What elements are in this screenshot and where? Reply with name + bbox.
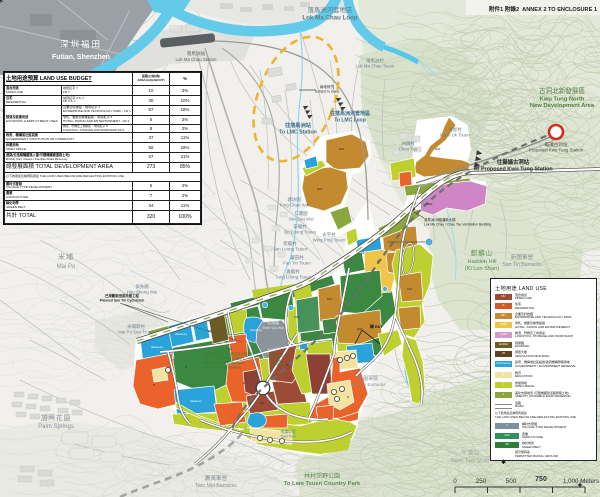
svg-text:1,000 Meters: 1,000 Meters (563, 478, 599, 485)
svg-text:AGR: AGR (294, 315, 300, 319)
svg-text:落馬洲/洲頭通風大樓: 落馬洲/洲頭通風大樓 (424, 217, 456, 222)
svg-text:往擬議古洞站: 往擬議古洞站 (497, 158, 530, 166)
svg-text:鷹萬軍營: 鷹萬軍營 (205, 474, 228, 482)
svg-text:EP: EP (208, 329, 212, 333)
svg-text:落馬洲河套地區: 落馬洲河套地區 (308, 5, 353, 14)
svg-text:0: 0 (453, 478, 457, 485)
svg-text:(Ki Lun Shan): (Ki Lun Shan) (465, 266, 499, 272)
svg-text:Hadden Hill: Hadden Hill (468, 259, 497, 265)
svg-text:To Proposed Kwu Tung Station: To Proposed Kwu Tung Station (473, 167, 552, 173)
svg-text:Town Park: Town Park (280, 435, 296, 439)
svg-text:750: 750 (535, 476, 547, 483)
svg-text:石湖圍: 石湖圍 (267, 319, 279, 325)
svg-text:centre: centre (271, 363, 281, 367)
svg-text:(Reserve): (Reserve) (250, 328, 262, 332)
svg-text:R: R (347, 395, 349, 399)
svg-text:Lok Ma Chau Station: Lok Ma Chau Station (175, 57, 217, 62)
svg-text:Lok Ma Chau Tsuen: Lok Ma Chau Tsuen (356, 64, 396, 69)
svg-text:Fan Tin Tsuen: Fan Tin Tsuen (283, 261, 311, 266)
svg-text:林村郊野公園: 林村郊野公園 (304, 472, 340, 480)
svg-text:牛潭山: 牛潭山 (461, 449, 479, 457)
svg-text:To Lam Tsuen Country Park: To Lam Tsuen Country Park (284, 481, 361, 487)
svg-text:Yan Sau Wai: Yan Sau Wai (288, 217, 313, 222)
svg-text:To LMC Loop: To LMC Loop (334, 118, 366, 124)
svg-text:San Loong Tsuen: San Loong Tsuen (273, 247, 308, 252)
svg-text:MU: MU (260, 401, 264, 405)
svg-text:Palm Springs: Palm Springs (38, 424, 74, 430)
svg-text:米埔: 米埔 (58, 252, 74, 261)
svg-text:Tung Chan Wai: Tung Chan Wai (279, 203, 309, 208)
svg-text:E&T: E&T (327, 297, 333, 301)
svg-text:E&T: E&T (435, 147, 441, 151)
svg-text:新圍軍營: 新圍軍營 (358, 375, 378, 382)
svg-text:E&T: E&T (357, 327, 363, 331)
svg-text:To LMC Station: To LMC Station (279, 130, 317, 136)
svg-text:MU: MU (286, 363, 290, 367)
svg-text:深圳福田: 深圳福田 (60, 39, 102, 49)
svg-text:已規劃新田區改善工程: 已規劃新田區改善工程 (105, 293, 140, 298)
svg-text:Chau Tau: Chau Tau (399, 147, 418, 152)
svg-text:Mai Po San Tsuen: Mai Po San Tsuen (118, 330, 154, 335)
svg-text:(Reserve): (Reserve) (175, 332, 187, 336)
svg-text:Futian, Shenzhen: Futian, Shenzhen (52, 54, 110, 61)
svg-text:E&T: E&T (317, 187, 323, 191)
svg-text:R: R (153, 383, 155, 387)
svg-text:往落馬洲站: 往落馬洲站 (285, 121, 312, 129)
svg-text:市鎮公園: 市鎮公園 (280, 429, 295, 434)
svg-text:Tam Mei Barracks: Tam Mei Barracks (195, 483, 237, 489)
svg-text:E&T: E&T (339, 147, 345, 151)
svg-text:H: H (377, 259, 379, 263)
svg-text:(Density to shift facilities a: (Density to shift facilities and (203, 361, 245, 365)
svg-text:Shek Wu Wai: Shek Wu Wai (262, 326, 284, 330)
svg-text:古洞北新發展區: 古洞北新發展區 (539, 86, 586, 95)
svg-text:Mai Po: Mai Po (57, 264, 76, 270)
svg-text:Lok Ma Chau Loop: Lok Ma Chau Loop (302, 15, 358, 22)
svg-text:Planned San Tin Cycletrack: Planned San Tin Cycletrack (100, 299, 145, 303)
svg-text:San Tin Barracks: San Tin Barracks (502, 262, 542, 268)
svg-text:附件1 附錄2 ANNEX 2 TO ENCLOSURE: 附件1 附錄2 ANNEX 2 TO ENCLOSURE 1 (489, 5, 597, 13)
svg-text:G4: G4 (228, 347, 232, 351)
svg-text:Wing Ping Tsuen: Wing Ping Tsuen (313, 238, 346, 243)
svg-text:250: 250 (476, 478, 487, 485)
svg-text:E&T: E&T (407, 287, 413, 291)
svg-text:Poon Uk Tsuen: Poon Uk Tsuen (440, 133, 470, 138)
svg-text:新圍軍營: 新圍軍營 (511, 253, 534, 261)
svg-text:L,S&W: L,S&W (424, 202, 433, 206)
svg-text:Proposed Kwu Tung Station: Proposed Kwu Tung Station (529, 148, 584, 153)
svg-text:R: R (243, 381, 245, 385)
svg-text:Kwu Tung North: Kwu Tung North (540, 97, 585, 103)
svg-text:注意一・現有道路附近設計): 注意一・現有道路附近設計) (203, 356, 244, 361)
svg-text:Ngau Tam Shan: Ngau Tam Shan (451, 458, 490, 464)
svg-text:兩地研究: 兩地研究 (320, 84, 335, 89)
svg-text:San Tin Barracks: San Tin Barracks (351, 382, 387, 387)
svg-text:Tung Loong Tsuen: Tung Loong Tsuen (275, 275, 312, 280)
svg-text:往落馬洲河套地區: 往落馬洲河套地區 (329, 110, 370, 117)
svg-text:(Reserve): (Reserve) (151, 345, 163, 349)
svg-text:Lok Ma Chau / Chau Tau Ventila: Lok Ma Chau / Chau Tau Ventilation Build… (424, 223, 491, 227)
svg-text:加州花園: 加州花園 (41, 413, 71, 422)
svg-text:麒麟山: 麒麟山 (471, 248, 493, 257)
svg-text:轉 E&T: 轉 E&T (370, 324, 383, 329)
svg-text:(當區作業設施・構建活用片區設計: (當區作業設施・構建活用片區設計 (203, 351, 254, 356)
svg-text:500: 500 (506, 478, 517, 485)
svg-text:(Reserve): (Reserve) (190, 399, 202, 403)
svg-text:新田市中心: 新田市中心 (268, 353, 286, 358)
svg-text:落馬洲站: 落馬洲站 (187, 50, 206, 57)
svg-text:New Development Area: New Development Area (530, 103, 595, 109)
svg-text:On Loong Tsuen: On Loong Tsuen (284, 230, 317, 235)
svg-text:lifestyle recovery facilities): lifestyle recovery facilities) (203, 366, 241, 370)
svg-text:Subject to study: Subject to study (315, 90, 339, 94)
